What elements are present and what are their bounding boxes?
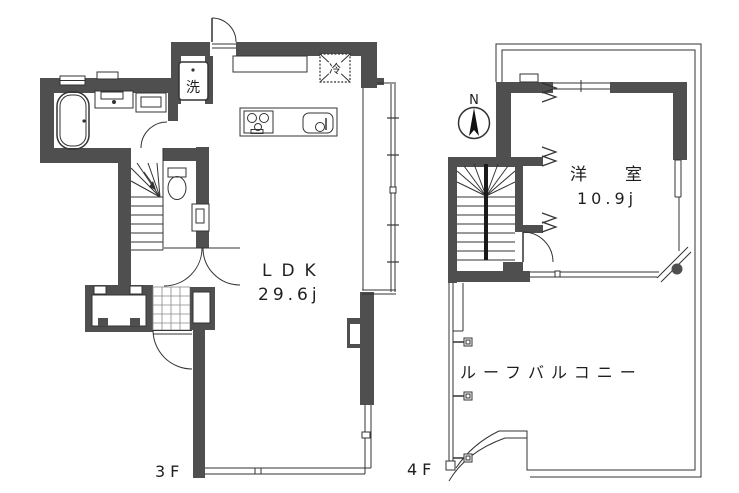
- washing-machine: 洗: [179, 62, 208, 100]
- floor-plan-4f: N 洋室 10: [407, 44, 701, 481]
- entrance-door: [153, 330, 192, 369]
- vent-3f: [97, 72, 118, 79]
- railing-bracket: [453, 454, 472, 462]
- north-arrow: N: [459, 93, 490, 139]
- opening-marks: [542, 83, 556, 232]
- toilet: [168, 168, 186, 200]
- room-window-north: [553, 80, 610, 92]
- floor-plan-3f: 洗 冷: [40, 18, 399, 481]
- bathroom-window: [60, 76, 85, 85]
- stairs-4f: [457, 164, 515, 260]
- balcony-parapet: [449, 44, 701, 481]
- vent-4f: [520, 74, 538, 82]
- hall-fixture: [192, 204, 209, 231]
- room-label-4f: 洋室: [570, 165, 680, 185]
- corner-cut: [657, 247, 691, 282]
- room-window-south: [530, 271, 659, 277]
- stairs-3f: [131, 148, 163, 250]
- railing-bracket: [453, 392, 472, 400]
- elevator: [85, 285, 153, 332]
- washstand-cabinet: [136, 93, 166, 112]
- compass-label: N: [469, 93, 479, 108]
- refrigerator: 冷: [320, 54, 350, 82]
- floor-plan-canvas: 洗 冷: [0, 0, 739, 493]
- floor-plan-drawing: 洗 冷: [0, 0, 739, 493]
- entrance-tile-floor: [153, 287, 190, 330]
- entry-door-top: [212, 18, 236, 48]
- window-wall-east: [362, 83, 399, 294]
- kitchen-island: [240, 108, 337, 136]
- hall-doors: [164, 248, 240, 286]
- window-wall-south: [205, 405, 371, 474]
- balcony-label: ルーフバルコニー: [460, 363, 643, 382]
- room-area-3f: 29.6j: [258, 285, 321, 305]
- kitchen-counter: [233, 56, 307, 72]
- floor-label-4f: 4F: [407, 460, 436, 479]
- drain-pipe: [672, 264, 683, 275]
- vanity-counter: [95, 91, 133, 108]
- floor-label-3f: 3F: [155, 462, 184, 481]
- railing-bracket: [453, 338, 472, 346]
- room-area-4f: 10.9j: [577, 189, 637, 208]
- washer-label: 洗: [186, 80, 200, 96]
- railing-corner-post: [446, 461, 455, 470]
- duct-shaft: [190, 287, 215, 330]
- stair-door: [523, 232, 553, 262]
- room-label-3f: LDK: [262, 261, 326, 281]
- fridge-label: 冷: [329, 62, 341, 76]
